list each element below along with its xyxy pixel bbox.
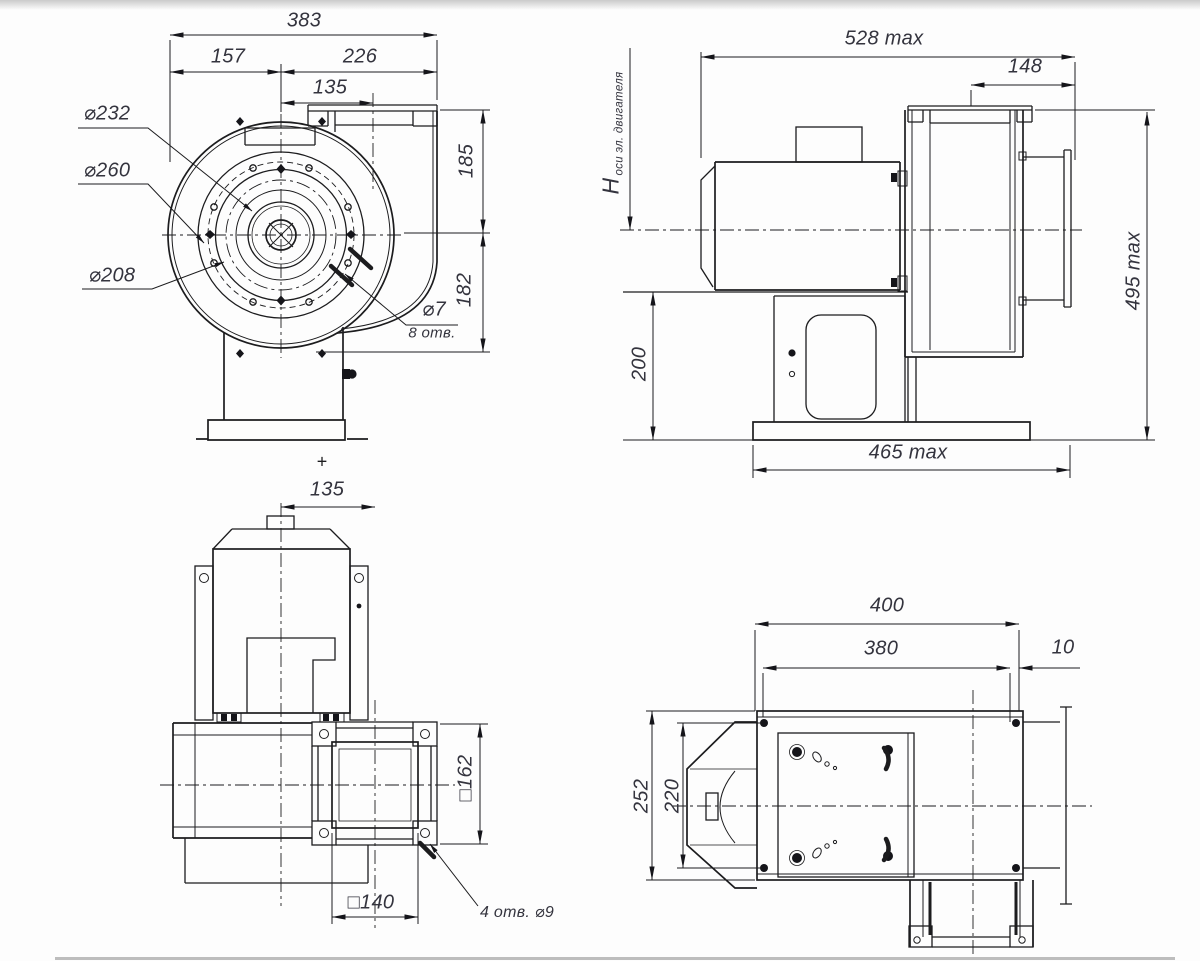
label-bolt-circle-dia: ⌀232 (84, 101, 131, 126)
dim-front-axis-left: 157 (211, 46, 245, 69)
label-motor-axis-symbol: H (598, 178, 625, 195)
label-motor-axis-note: оси эл. двигателя (614, 72, 626, 176)
center-plus-mark: + (317, 452, 328, 473)
dim-front-overall-width: 383 (287, 10, 321, 33)
dim-front-axis-base: 182 (454, 273, 477, 307)
dim-top-flange-square: □162 (455, 755, 478, 802)
side-view-linework (620, 48, 1155, 478)
dim-front-axis-right: 226 (343, 46, 377, 69)
dim-side-base-length: 465 max (869, 442, 948, 465)
label-flange-holes-note: 4 отв. ⌀9 (480, 902, 554, 922)
dim-side-overall-height: 495 max (1123, 232, 1146, 311)
dim-top-duct-square: □140 (348, 892, 395, 915)
top-view-linework (160, 503, 488, 928)
front-view-linework (78, 35, 490, 440)
dim-bottom-base-length: 400 (870, 595, 904, 618)
dim-bottom-holes-span-width: 220 (662, 779, 685, 813)
label-motor-axis-height: Hоси эл. двигателя (598, 72, 625, 195)
dim-front-axis-outlet: 135 (313, 77, 347, 100)
dim-side-overall-length: 528 max (845, 28, 924, 51)
bottom-view-linework (646, 624, 1092, 955)
dim-bottom-holes-span-length: 380 (864, 638, 898, 661)
technical-drawing-canvas: 383 157 226 135 185 182 ⌀232 ⌀260 ⌀208 ⌀… (0, 0, 1200, 961)
label-inlet-inner-dia: ⌀208 (89, 263, 136, 288)
dim-top-axis-outlet: 135 (310, 479, 344, 502)
dim-bottom-base-width: 252 (631, 779, 654, 813)
label-hole-count: 8 отв. (408, 325, 455, 342)
label-flange-outer-dia: ⌀260 (84, 158, 131, 183)
dim-side-pedestal-height: 200 (629, 347, 652, 381)
label-hole-dia: ⌀7 (422, 297, 446, 322)
dim-front-outlet-height: 185 (456, 144, 479, 178)
dim-side-inlet-depth: 148 (1008, 56, 1042, 79)
dim-bottom-edge-offset: 10 (1052, 637, 1075, 660)
